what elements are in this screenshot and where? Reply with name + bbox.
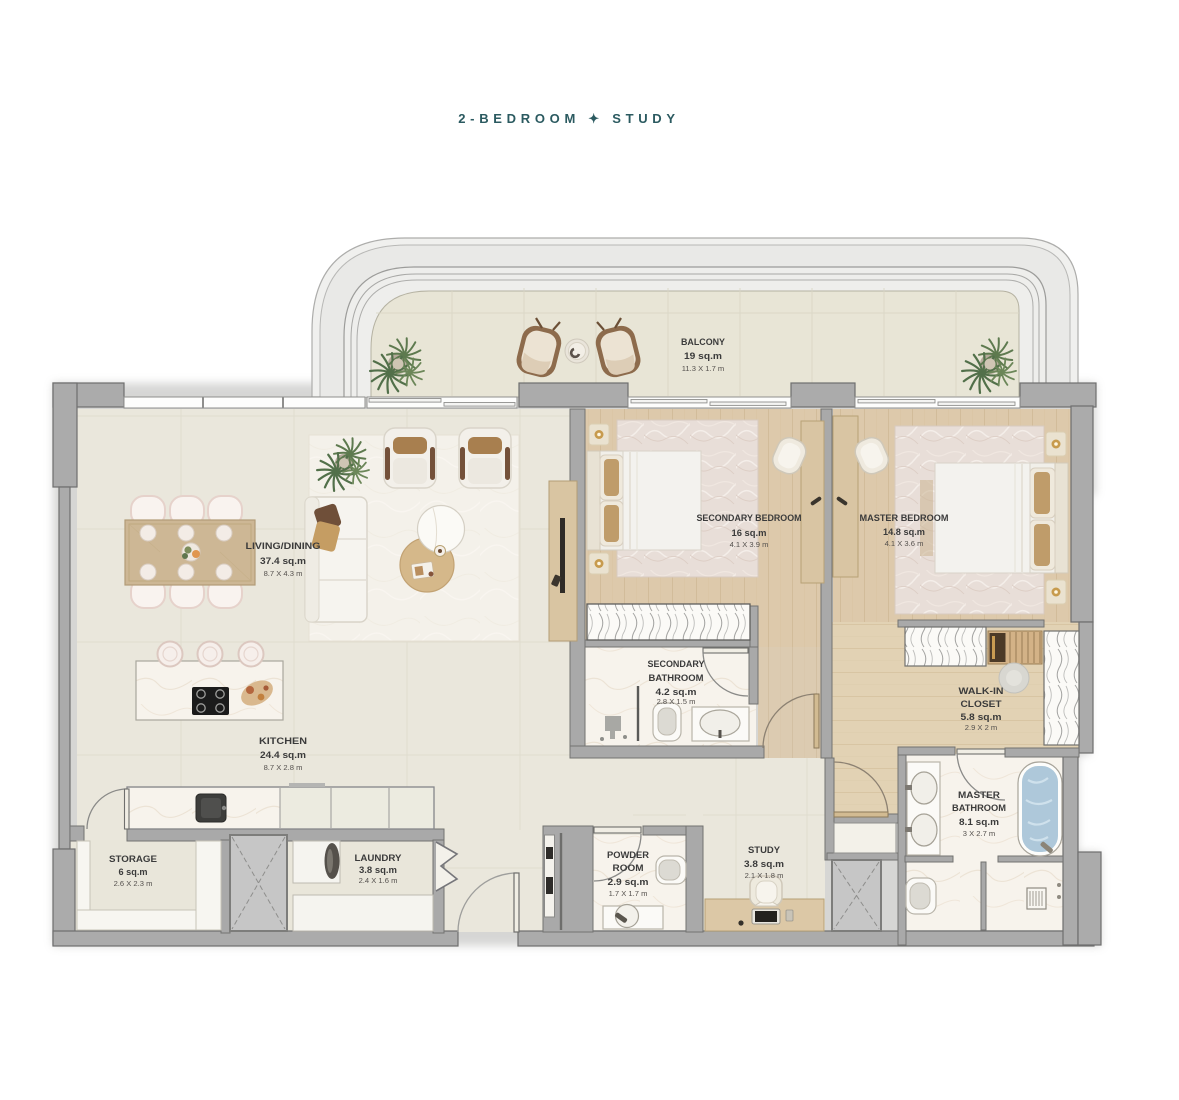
svg-text:STUDY: STUDY [748,845,781,856]
svg-text:LIVING/DINING: LIVING/DINING [246,541,321,552]
svg-text:8.1 sq.m: 8.1 sq.m [959,816,999,827]
svg-text:14.8 sq.m: 14.8 sq.m [883,526,925,537]
svg-text:19 sq.m: 19 sq.m [684,350,722,361]
svg-text:2.9 X 2 m: 2.9 X 2 m [965,723,998,732]
svg-text:2.4 X 1.6 m: 2.4 X 1.6 m [359,876,398,885]
svg-text:37.4 sq.m: 37.4 sq.m [260,555,306,566]
svg-text:BATHROOM: BATHROOM [649,673,704,684]
svg-text:4.2 sq.m: 4.2 sq.m [656,686,697,697]
svg-text:1.7 X 1.7 m: 1.7 X 1.7 m [609,889,648,898]
svg-text:STORAGE: STORAGE [109,854,158,865]
svg-text:11.3 X 1.7 m: 11.3 X 1.7 m [682,364,725,373]
svg-text:SECONDARY: SECONDARY [648,659,706,670]
svg-text:24.4 sq.m: 24.4 sq.m [260,749,306,760]
svg-text:SECONDARY BEDROOM: SECONDARY BEDROOM [697,513,802,524]
svg-text:8.7 X 4.3 m: 8.7 X 4.3 m [264,569,303,578]
svg-text:6 sq.m: 6 sq.m [119,866,148,877]
svg-text:8.7 X 2.8 m: 8.7 X 2.8 m [264,763,303,772]
svg-text:3.8 sq.m: 3.8 sq.m [744,858,784,869]
svg-text:BATHROOM: BATHROOM [952,803,1006,814]
svg-text:MASTER BEDROOM: MASTER BEDROOM [860,513,949,524]
svg-text:POWDER: POWDER [607,850,649,861]
svg-text:KITCHEN: KITCHEN [259,736,307,747]
svg-text:2.1 X 1.8 m: 2.1 X 1.8 m [745,871,784,880]
svg-text:BALCONY: BALCONY [681,337,726,348]
svg-text:MASTER: MASTER [958,790,1000,801]
svg-text:4.1 X 3.6 m: 4.1 X 3.6 m [885,539,924,548]
svg-text:CLOSET: CLOSET [961,699,1002,710]
svg-text:LAUNDRY: LAUNDRY [355,853,403,864]
svg-text:3 X 2.7 m: 3 X 2.7 m [963,829,996,838]
svg-text:4.1 X 3.9 m: 4.1 X 3.9 m [730,540,769,549]
svg-text:16 sq.m: 16 sq.m [732,527,767,538]
svg-text:5.8 sq.m: 5.8 sq.m [961,711,1002,722]
svg-text:2.6 X 2.3 m: 2.6 X 2.3 m [114,879,153,888]
svg-text:3.8 sq.m: 3.8 sq.m [359,864,397,875]
svg-text:2.9 sq.m: 2.9 sq.m [608,876,649,887]
svg-text:ROOM: ROOM [613,863,644,874]
svg-text:WALK-IN: WALK-IN [959,686,1004,697]
svg-text:2.8 X 1.5 m: 2.8 X 1.5 m [657,697,696,706]
